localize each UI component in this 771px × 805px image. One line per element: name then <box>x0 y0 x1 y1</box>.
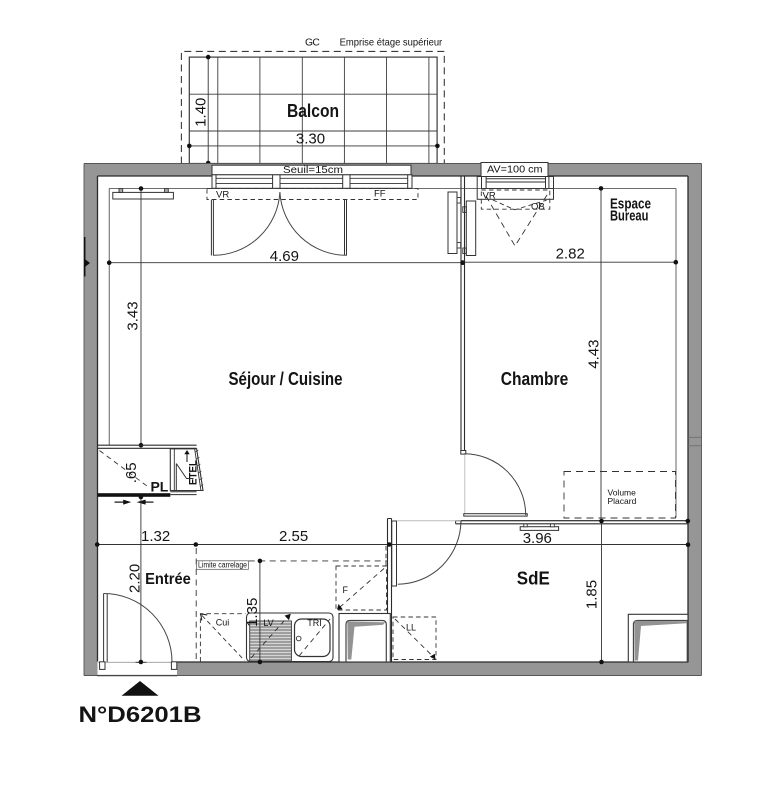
svg-text:2.55: 2.55 <box>279 528 308 545</box>
svg-text:TRI: TRI <box>307 618 322 628</box>
svg-text:3.43: 3.43 <box>124 301 141 330</box>
svg-text:VR: VR <box>216 190 229 201</box>
svg-text:1.85: 1.85 <box>583 580 600 609</box>
svg-text:AV=100 cm: AV=100 cm <box>487 165 543 176</box>
svg-text:3.30: 3.30 <box>296 131 325 148</box>
svg-text:LL: LL <box>406 623 416 633</box>
svg-text:LV: LV <box>263 618 273 628</box>
svg-text:2.20: 2.20 <box>127 564 144 593</box>
svg-text:4.69: 4.69 <box>270 248 299 265</box>
svg-text:SdE: SdE <box>517 569 550 589</box>
svg-text:ETEL: ETEL <box>188 460 200 485</box>
svg-text:PL: PL <box>150 478 168 494</box>
svg-text:Cui: Cui <box>216 618 230 628</box>
svg-text:VR: VR <box>483 191 496 202</box>
svg-text:.65: .65 <box>123 462 140 483</box>
svg-text:Chambre: Chambre <box>501 369 569 389</box>
svg-text:OB: OB <box>531 202 545 213</box>
svg-text:1.40: 1.40 <box>193 98 210 127</box>
svg-text:1.32: 1.32 <box>141 528 170 545</box>
svg-text:FF: FF <box>374 189 386 200</box>
svg-text:Emprise étage supérieur: Emprise étage supérieur <box>340 38 443 49</box>
svg-text:Entrée: Entrée <box>145 571 191 588</box>
svg-text:4.43: 4.43 <box>586 339 603 368</box>
svg-text:1.35: 1.35 <box>244 598 261 627</box>
svg-text:Balcon: Balcon <box>287 101 339 121</box>
svg-text:N°D6201B: N°D6201B <box>79 702 202 727</box>
svg-text:F: F <box>343 585 349 595</box>
svg-text:GC: GC <box>305 38 320 49</box>
svg-text:2.82: 2.82 <box>556 246 585 263</box>
svg-text:Bureau: Bureau <box>610 208 648 224</box>
svg-text:Séjour / Cuisine: Séjour / Cuisine <box>229 369 343 389</box>
svg-text:Seuil=15cm: Seuil=15cm <box>283 164 343 176</box>
svg-text:Placard: Placard <box>608 496 637 506</box>
svg-text:Limite carrelage: Limite carrelage <box>198 561 247 570</box>
